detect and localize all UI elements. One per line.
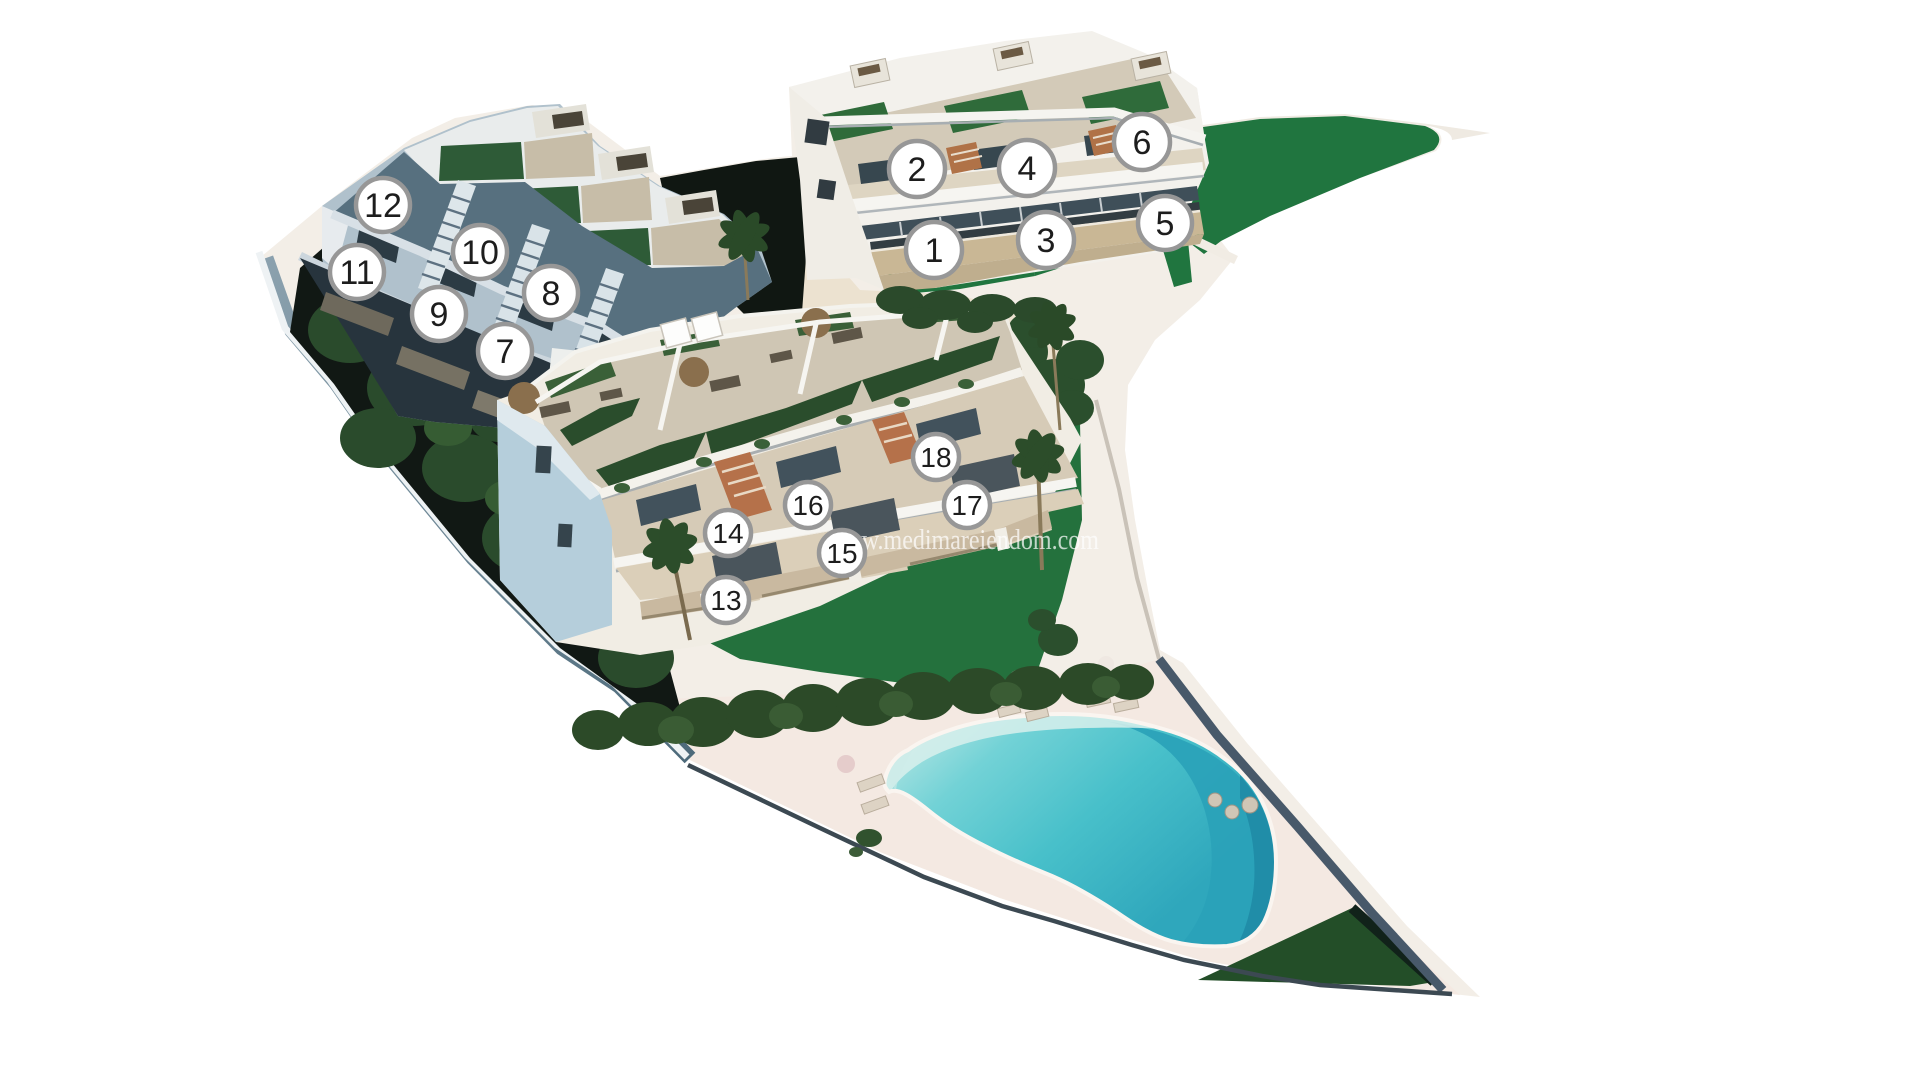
svg-text:1: 1 (925, 232, 944, 270)
svg-text:8: 8 (542, 275, 561, 313)
svg-text:9: 9 (430, 296, 449, 334)
svg-text:13: 13 (710, 585, 741, 616)
svg-text:16: 16 (792, 490, 823, 521)
svg-text:11: 11 (339, 254, 374, 292)
svg-text:18: 18 (920, 442, 951, 473)
svg-text:3: 3 (1037, 222, 1056, 260)
svg-text:4: 4 (1018, 150, 1037, 188)
svg-text:12: 12 (364, 187, 402, 225)
svg-text:10: 10 (461, 234, 499, 272)
svg-text:6: 6 (1133, 124, 1152, 162)
svg-text:14: 14 (712, 518, 743, 549)
svg-text:2: 2 (908, 151, 927, 189)
svg-text:17: 17 (951, 490, 982, 521)
svg-text:15: 15 (826, 538, 857, 569)
svg-text:5: 5 (1156, 205, 1175, 243)
svg-text:7: 7 (496, 333, 515, 371)
